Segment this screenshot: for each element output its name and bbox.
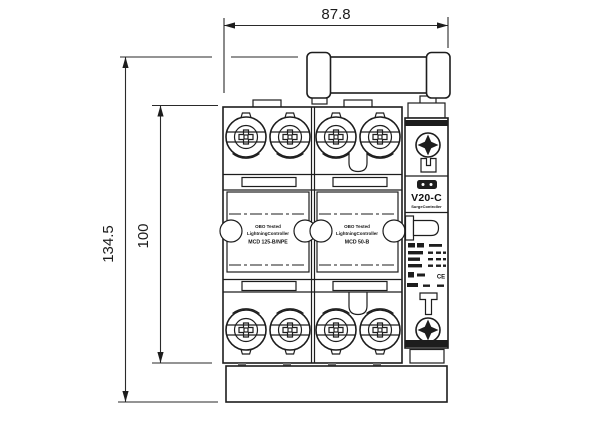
module-left-line2: LightningController	[247, 231, 289, 236]
module-right-face: OBO Tested LightningController MCD 50-B	[310, 192, 405, 272]
v20c-bottom-block	[410, 350, 444, 364]
v20c-unit: V20-C SurgeController CE	[405, 103, 448, 363]
indicator-dot	[430, 183, 433, 186]
ce-mark: CE	[437, 275, 445, 281]
crosshead-screw-icon	[416, 133, 440, 157]
arrow-right-icon	[437, 22, 448, 28]
module-right-line3: MCD 50-B	[345, 240, 370, 246]
dimension-drawing: 87.8 134.5 100	[0, 0, 600, 422]
dimension-height-body-value: 100	[135, 223, 152, 248]
v20c-bottom-band	[405, 340, 448, 347]
arrow-up-icon	[157, 106, 163, 117]
release-cutout	[383, 220, 405, 242]
module-handle	[414, 221, 439, 236]
arrow-down-icon	[157, 352, 163, 363]
indicator-dot	[422, 183, 425, 186]
module-left-line3: MCD 125-B/NPE	[248, 240, 288, 246]
module-handle-cap	[406, 216, 414, 240]
release-cutout	[220, 220, 242, 242]
v20c-top-terminal	[408, 103, 445, 118]
crosshead-screw-icon	[416, 318, 440, 342]
module-left-line1: OBO Tested	[255, 224, 281, 229]
v20c-model-label: V20-C	[411, 192, 442, 204]
dimension-height-body: 100	[135, 106, 218, 364]
label-pictogram	[408, 272, 414, 278]
arrow-down-icon	[122, 391, 128, 402]
module-right-line2: LightningController	[336, 231, 378, 236]
release-cutout	[310, 220, 332, 242]
dimension-height-total-value: 134.5	[100, 225, 117, 263]
busbar	[307, 53, 450, 105]
module-left-face: OBO Tested LightningController MCD 125-B…	[220, 192, 316, 272]
dimension-width-value: 87.8	[321, 6, 350, 23]
v20c-top-band	[405, 120, 448, 126]
busbar-end-cap	[307, 53, 331, 99]
v20c-type-label: SurgeController	[411, 204, 442, 209]
mounting-base	[226, 363, 447, 402]
base-outline	[226, 366, 447, 402]
busbar-end-cap	[427, 53, 451, 99]
device-body: OBO Tested LightningController MCD 125-B…	[220, 100, 405, 363]
arrow-up-icon	[122, 57, 128, 68]
module-right-line1: OBO Tested	[344, 224, 370, 229]
arrow-left-icon	[224, 22, 235, 28]
drawing-canvas: 87.8 134.5 100	[0, 0, 600, 422]
indicator-window-icon	[417, 180, 437, 189]
